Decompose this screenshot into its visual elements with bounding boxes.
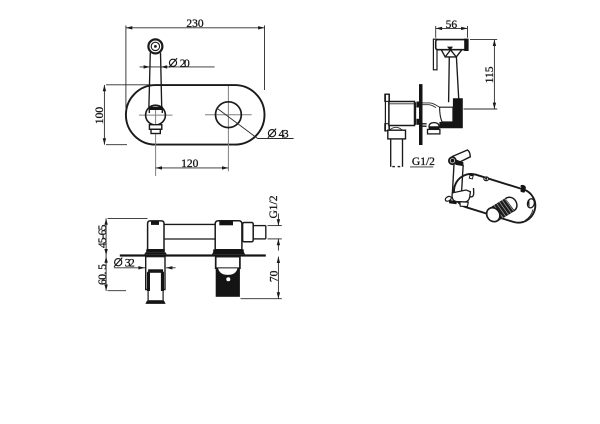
svg-text:115: 115	[484, 66, 496, 83]
svg-text:100: 100	[94, 107, 106, 125]
svg-text:56: 56	[446, 19, 458, 31]
svg-text:230: 230	[186, 18, 204, 30]
svg-text:60. 5: 60. 5	[97, 264, 109, 285]
svg-text:45-65: 45-65	[97, 224, 109, 248]
svg-text:120: 120	[181, 158, 199, 170]
svg-text:20: 20	[180, 58, 190, 70]
svg-text:43: 43	[279, 128, 289, 140]
svg-text:G1/2: G1/2	[412, 156, 435, 168]
svg-text:70: 70	[269, 270, 281, 282]
svg-text:32: 32	[125, 257, 135, 269]
svg-text:G1/2: G1/2	[268, 195, 280, 218]
